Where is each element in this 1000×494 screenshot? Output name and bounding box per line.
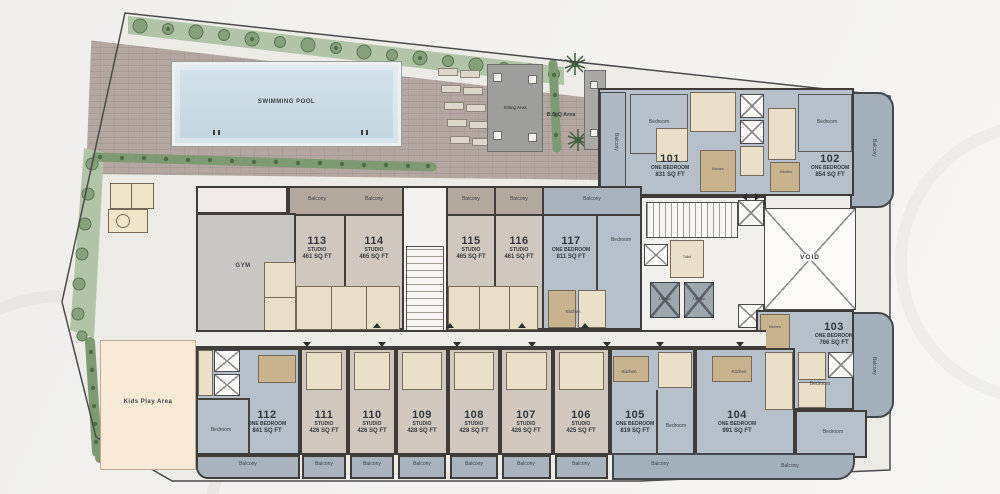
bedroom-label: Bedroom — [599, 238, 643, 244]
wall-line — [131, 184, 132, 208]
lounge-chair — [438, 68, 458, 76]
entry-arrow-icon — [446, 323, 454, 328]
lounge-chair — [466, 104, 486, 112]
balcony-label: Balcony — [496, 462, 556, 468]
service-shaft — [740, 94, 764, 118]
table-icon — [590, 129, 598, 137]
entry-arrow-icon — [755, 193, 760, 201]
lounge-chair — [447, 119, 467, 127]
kitchen-label: Kitchen — [756, 325, 794, 329]
lounge-chair — [469, 121, 489, 129]
unit-117-label: 117 ONE BEDROOM 811 SQ FT — [535, 236, 607, 260]
sitting-area-label: Sitting Area — [488, 105, 542, 110]
unit-area: 465 SQ FT — [338, 254, 410, 260]
bathroom-pod — [354, 352, 390, 390]
bathroom-pod — [306, 352, 342, 390]
balcony-label: Balcony — [864, 336, 876, 396]
balcony-label: Balcony — [551, 462, 611, 468]
service-shaft — [828, 352, 854, 378]
service-shaft — [738, 200, 764, 226]
wall-line — [331, 287, 332, 329]
entry-arrow-icon — [518, 323, 526, 328]
bathroom-pod — [454, 352, 494, 390]
swimming-pool: SWIMMING POOL — [172, 62, 401, 146]
bathroom-pod — [506, 352, 547, 390]
bedroom-label: Bedroom — [198, 428, 244, 434]
unit-type: ONE BEDROOM — [231, 422, 303, 427]
gym-label: GYM — [219, 263, 267, 270]
unit-type: STUDIO — [338, 248, 410, 253]
bedroom-label: Bedroom — [794, 382, 846, 388]
swimming-pool-label: SWIMMING POOL — [175, 99, 398, 106]
entry-arrow-icon — [303, 342, 311, 347]
kitchen-label: Kitchen — [553, 309, 593, 314]
unit-area: 991 SQ FT — [701, 428, 773, 434]
pool-ladder-icon — [361, 130, 368, 135]
bedroom-label: Bedroom — [808, 430, 858, 436]
entry-arrow-icon — [373, 323, 381, 328]
balcony-label: Balcony — [489, 197, 549, 203]
unit-type: ONE BEDROOM — [798, 334, 870, 339]
entry-arrow-icon — [453, 342, 461, 347]
wall-line — [509, 287, 510, 329]
wall-line — [479, 287, 480, 329]
unit-area: 854 SQ FT — [794, 172, 866, 178]
balcony-label: Balcony — [864, 118, 876, 178]
unit-number: 114 — [338, 236, 410, 247]
unit-102-label: 102 ONE BEDROOM 854 SQ FT — [794, 154, 866, 178]
balcony-label: Balcony — [606, 112, 618, 172]
bedroom-label: Bedroom — [802, 120, 852, 126]
unit-type: ONE BEDROOM — [794, 166, 866, 171]
table-icon — [493, 73, 502, 82]
entry-arrow-icon — [742, 193, 747, 201]
kids-play-area-label: Kids Play Area — [112, 399, 184, 406]
unit-type: ONE BEDROOM — [634, 166, 706, 171]
bathroom-pod — [402, 352, 442, 390]
unit-number: 101 — [634, 154, 706, 165]
unit-number: 112 — [231, 410, 303, 421]
entry-arrow-icon — [603, 342, 611, 347]
kitchen-label: Kitchen — [719, 369, 759, 374]
stairs — [406, 246, 444, 342]
table-icon — [590, 81, 598, 89]
lounge-chair — [450, 136, 470, 144]
void-label: VOID — [786, 254, 834, 261]
lounge-chair — [463, 87, 483, 95]
bathroom-pod — [768, 108, 796, 160]
balcony-label: Balcony — [392, 462, 452, 468]
entry-arrow-icon — [581, 323, 589, 328]
service-shaft — [214, 350, 240, 372]
unit-114-label: 114 STUDIO 465 SQ FT — [338, 236, 410, 260]
balcony-label: Balcony — [630, 462, 690, 468]
bbq-area-label: B.B.Q Area — [546, 112, 576, 118]
kitchen-label: Kitchen — [609, 369, 649, 374]
sitting-area: Sitting Area — [487, 64, 543, 152]
entry-arrow-icon — [736, 342, 744, 347]
balcony-label: Balcony — [562, 197, 622, 203]
toilet-pod — [740, 146, 764, 176]
elevator-label: Elevator — [684, 297, 714, 301]
service-shaft — [740, 120, 764, 144]
kitchen-label: Kitchen — [768, 170, 804, 174]
bathroom-pod — [559, 352, 604, 390]
equipment-icon — [116, 214, 130, 228]
unit-number: 104 — [701, 410, 773, 421]
lounge-chair — [460, 70, 480, 78]
entry-arrow-icon — [528, 342, 536, 347]
balcony-label: Balcony — [344, 197, 404, 203]
unit-number: 102 — [794, 154, 866, 165]
lounge-chair — [441, 85, 461, 93]
bathroom-pod — [658, 352, 692, 388]
bathroom-pod — [798, 352, 826, 380]
bedroom-label: Bedroom — [652, 424, 700, 430]
bathroom-pod — [690, 92, 736, 132]
corridor — [196, 330, 766, 348]
wall-line — [265, 297, 295, 298]
unit-103-label: 103 ONE BEDROOM 766 SQ FT — [798, 322, 870, 346]
entry-arrow-icon — [378, 342, 386, 347]
service-shaft — [214, 374, 240, 396]
kitchen-label: Kitchen — [700, 167, 736, 171]
floor-plan-canvas: Kids Play Area SWIMMING POOL Sitting Are… — [0, 0, 1000, 494]
unit-area: 831 SQ FT — [634, 172, 706, 178]
elevator-label: Elevator — [650, 297, 680, 301]
balcony-label: Balcony — [444, 462, 504, 468]
bathroom-pod — [198, 350, 213, 396]
service-room — [110, 183, 154, 209]
unit-104-label: 104 ONE BEDROOM 991 SQ FT — [701, 410, 773, 434]
bedroom-label: Bedroom — [634, 120, 684, 126]
gym-bathroom-pods — [264, 262, 296, 332]
kitchen-counter — [258, 355, 296, 383]
service-room — [108, 209, 148, 233]
wall-line — [196, 398, 248, 400]
wall-line — [366, 287, 367, 329]
unit-area: 766 SQ FT — [798, 340, 870, 346]
toilet-label: Toilet — [672, 255, 702, 259]
pool-ladder-icon — [213, 130, 220, 135]
bathroom-pods-113-114 — [296, 286, 400, 330]
entry-arrow-icon — [656, 342, 664, 347]
balcony-label: Balcony — [287, 197, 347, 203]
unit-101-label: 101 ONE BEDROOM 831 SQ FT — [634, 154, 706, 178]
entry-corridor — [196, 186, 288, 214]
unit-number: 103 — [798, 322, 870, 333]
balcony-label: Balcony — [760, 464, 820, 470]
table-icon — [528, 75, 537, 84]
unit-type: ONE BEDROOM — [535, 248, 607, 253]
unit-area: 811 SQ FT — [535, 254, 607, 260]
table-icon — [528, 133, 537, 142]
bathroom-pod — [765, 352, 793, 410]
stairs — [646, 202, 738, 238]
lounge-chair — [444, 102, 464, 110]
table-icon — [493, 131, 502, 140]
unit-type: ONE BEDROOM — [701, 422, 773, 427]
unit-number: 117 — [535, 236, 607, 247]
balcony-label: Balcony — [218, 462, 278, 468]
service-shaft — [644, 244, 668, 266]
